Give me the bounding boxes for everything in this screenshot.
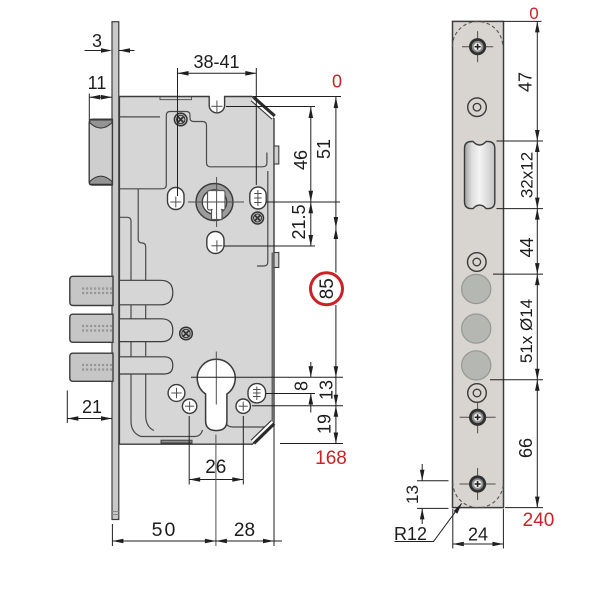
svg-text:51x Ø14: 51x Ø14 <box>517 299 536 363</box>
svg-text:11: 11 <box>88 73 107 93</box>
svg-text:44: 44 <box>517 237 537 257</box>
svg-text:32x12: 32x12 <box>518 152 537 198</box>
svg-text:51: 51 <box>314 139 334 159</box>
svg-text:24: 24 <box>468 525 488 545</box>
svg-text:13: 13 <box>403 485 422 504</box>
svg-text:85: 85 <box>317 278 338 299</box>
svg-text:240: 240 <box>523 510 555 531</box>
svg-text:66: 66 <box>516 438 536 458</box>
svg-text:13: 13 <box>317 380 337 400</box>
svg-text:38-41: 38-41 <box>193 52 239 72</box>
svg-text:168: 168 <box>315 448 347 469</box>
svg-text:8: 8 <box>292 381 312 391</box>
svg-text:46: 46 <box>291 150 311 170</box>
svg-text:28: 28 <box>234 520 255 541</box>
svg-text:21.5: 21.5 <box>289 204 309 239</box>
svg-text:21: 21 <box>82 397 102 417</box>
svg-text:0: 0 <box>529 4 538 23</box>
svg-text:0: 0 <box>332 72 342 92</box>
svg-text:47: 47 <box>516 72 536 92</box>
svg-text:19: 19 <box>315 414 335 434</box>
svg-text:3: 3 <box>92 31 102 51</box>
svg-text:50: 50 <box>152 519 178 541</box>
